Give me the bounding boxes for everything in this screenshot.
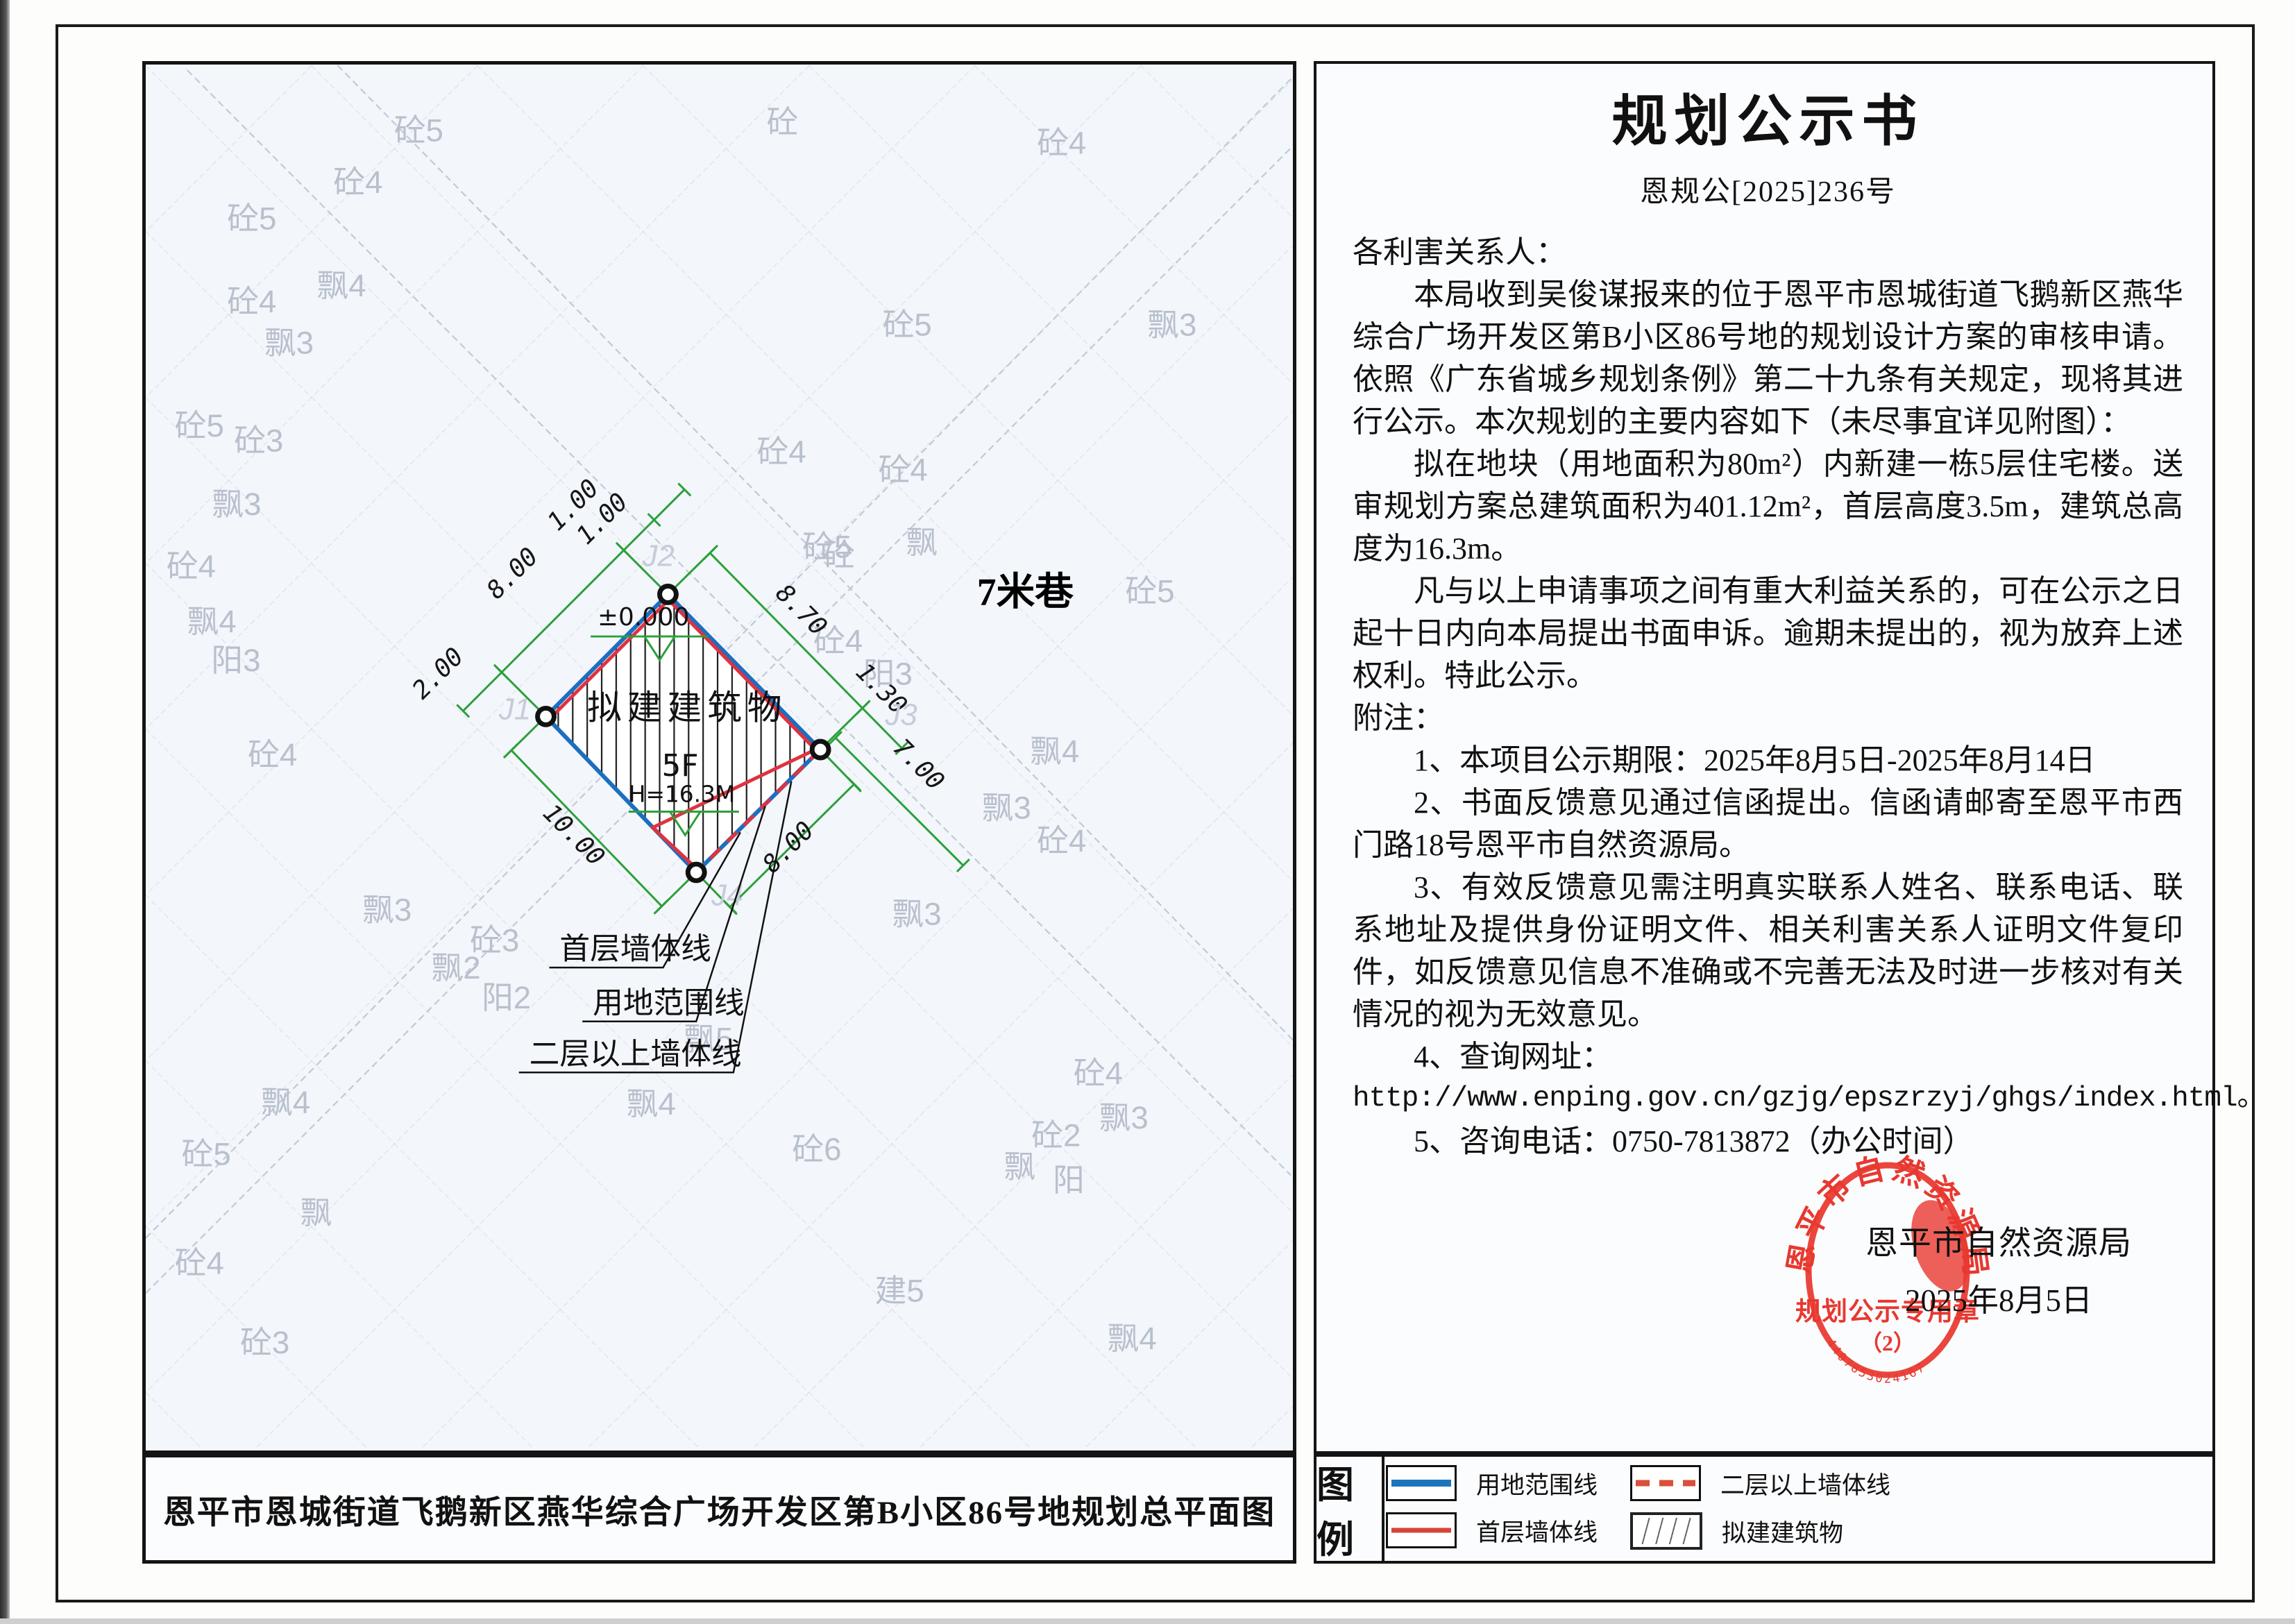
- legend-swatch-line: [1636, 1480, 1695, 1487]
- site-plan-svg: 砼5砼4砼5砼4飘4飘3砼5砼3飘3砼4飘4阳3砼4砼砼4砼5飘3砼4砼4砼飘砼…: [146, 65, 1293, 1450]
- parcel-label: 飘3: [982, 790, 1031, 825]
- parcel-label: 砼: [767, 104, 799, 139]
- notice-paragraph: 4、查询网址：: [1353, 1035, 2183, 1078]
- road-label: 7米巷: [977, 570, 1074, 614]
- callout-label: 用地范围线: [593, 987, 745, 1020]
- scanned-notice-page: 砼5砼4砼5砼4飘4飘3砼5砼3飘3砼4飘4阳3砼4砼砼4砼5飘3砼4砼4砼飘砼…: [0, 0, 2295, 1624]
- parcel-label: 砼5: [802, 530, 852, 565]
- legend-swatch-line: [1391, 1528, 1451, 1533]
- parcel-label: 飘4: [1108, 1321, 1157, 1356]
- parcel-label: 飘2: [432, 950, 481, 986]
- elevation-label: ±0.000: [598, 603, 689, 632]
- parcel-label: 砼3: [234, 423, 283, 459]
- corner-point-label: J1: [498, 692, 531, 726]
- notice-paragraph: 凡与以上申请事项之间有重大利益关系的，可在公示之日起十日内向本局提出书面申诉。逾…: [1353, 570, 2183, 697]
- parcel-label: 飘3: [212, 487, 261, 522]
- parcel-label: 砼5: [1125, 573, 1174, 609]
- parcel-label: 砼5: [182, 1136, 231, 1172]
- parcel-label: 砼4: [227, 284, 276, 319]
- parcel-label: 砼4: [1037, 823, 1086, 858]
- building-label: 拟建建筑物: [587, 688, 787, 727]
- notice-paragraph: 附注：: [1353, 697, 2183, 739]
- parcel-label: 飘3: [1147, 307, 1196, 343]
- plan-caption: 恩平市恩城街道飞鹅新区燕华综合广场开发区第B小区86号地规划总平面图: [163, 1485, 1276, 1533]
- signature-date: 2025年8月5日: [1804, 1275, 2193, 1320]
- legend-swatch-line: [1636, 1518, 1696, 1544]
- parcel-label: 砼4: [248, 737, 297, 772]
- signature-block: 恩平市自然资源局 2025年8月5日: [1804, 1216, 2193, 1320]
- floors-label: 5F: [662, 748, 699, 784]
- scan-edge: [0, 0, 10, 1624]
- parcel-label: 砼3: [240, 1325, 289, 1360]
- notice-body: 各利害关系人： 本局收到吴俊谋报来的位于恩平市恩城街道飞鹅新区燕华综合广场开发区…: [1353, 231, 2183, 1162]
- height-label: H=16.3M: [629, 781, 735, 808]
- site-plan-panel: 砼5砼4砼5砼4飘4飘3砼5砼3飘3砼4飘4阳3砼4砼砼4砼5飘3砼4砼4砼飘砼…: [142, 61, 1296, 1454]
- parcel-label: 砼4: [167, 549, 216, 584]
- legend-title: 图例: [1316, 1457, 1384, 1561]
- parcel-label: 飘3: [264, 325, 314, 361]
- parcel-label: 飘3: [892, 897, 941, 932]
- salutation: 各利害关系人：: [1353, 231, 2183, 273]
- legend-item-label: 首层墙体线: [1476, 1513, 1598, 1548]
- legend-item: 首层墙体线: [1386, 1512, 1598, 1548]
- parcel-label: 飘4: [1030, 734, 1079, 769]
- notice-paragraph: http://www.enping.gov.cn/gzjg/epszrzyj/g…: [1353, 1078, 2183, 1120]
- legend-swatch-red-dashed: [1630, 1465, 1701, 1501]
- parcel-label: 飘4: [187, 604, 237, 639]
- callout-label: 首层墙体线: [559, 933, 711, 966]
- legend-item: 拟建建筑物: [1630, 1512, 1843, 1550]
- parcel-label: 砼6: [792, 1131, 841, 1167]
- notice-paragraph: 3、有效反馈意见需注明真实联系人姓名、联系电话、联系地址及提供身份证明文件、相关…: [1353, 866, 2183, 1035]
- notice-paragraph: 5、咨询电话：0750-7813872（办公时间）: [1353, 1120, 2183, 1162]
- parcel-label: 砼2: [1031, 1118, 1081, 1153]
- parcel-label: 飘: [300, 1195, 332, 1230]
- parcel-label: 砼4: [175, 1245, 224, 1280]
- parcel-label: 砼5: [883, 307, 932, 343]
- legend-swatch-red-solid: [1386, 1512, 1457, 1548]
- legend-swatch-blue-solid: [1386, 1465, 1457, 1501]
- legend-swatch-hatch: [1630, 1512, 1702, 1550]
- corner-point-label: J2: [642, 539, 675, 573]
- parcel-label: 阳: [1053, 1162, 1085, 1198]
- seal-sub-text: （2）: [1860, 1330, 1915, 1355]
- parcel-label: 砼5: [175, 408, 224, 443]
- notice-paragraph: 2、书面反馈意见通过信函提出。信函请邮寄至恩平市西门路18号恩平市自然资源局。: [1353, 781, 2183, 866]
- notice-paragraph: 1、本项目公示期限：2025年8月5日-2025年8月14日: [1353, 739, 2183, 781]
- signature-agency: 恩平市自然资源局: [1804, 1216, 2193, 1264]
- notice-doc-number: 恩规公[2025]236号: [1353, 168, 2183, 210]
- parcel-label: 飘: [1004, 1149, 1036, 1184]
- plan-caption-box: 恩平市恩城街道飞鹅新区燕华综合广场开发区第B小区86号地规划总平面图: [142, 1454, 1296, 1564]
- scan-edge-bottom: [0, 1618, 2295, 1624]
- parcel-label: 飘4: [261, 1085, 310, 1120]
- notice-title: 规划公示书: [1353, 76, 2183, 157]
- legend-item: 二层以上墙体线: [1630, 1465, 1890, 1501]
- corner-point-label: J3: [885, 697, 917, 731]
- parcel-label: 建5: [875, 1273, 924, 1308]
- legend-item-label: 拟建建筑物: [1722, 1514, 1843, 1549]
- parcel-label: 飘: [906, 525, 938, 560]
- legend-swatch-line: [1391, 1480, 1451, 1487]
- parcel-label: 砼4: [757, 434, 806, 470]
- legend-box: 图例 用地范围线首层墙体线二层以上墙体线拟建建筑物: [1314, 1454, 2215, 1564]
- parcel-label: 砼4: [1074, 1056, 1123, 1091]
- parcel-label: 飘4: [627, 1086, 676, 1122]
- parcel-label: 砼5: [227, 201, 276, 237]
- parcel-label: 砼4: [879, 452, 928, 487]
- parcel-label: 阳3: [211, 643, 260, 678]
- parcel-label: 飘4: [317, 268, 366, 303]
- legend-item-label: 用地范围线: [1476, 1466, 1598, 1501]
- parcel-label: 阳2: [482, 980, 531, 1015]
- parcel-label: 飘3: [1099, 1100, 1149, 1135]
- notice-paragraph: 本局收到吴俊谋报来的位于恩平市恩城街道飞鹅新区燕华综合广场开发区第B小区86号地…: [1353, 273, 2183, 443]
- parcel-label: 飘3: [362, 893, 412, 928]
- parcel-label: 砼4: [1037, 125, 1086, 160]
- notice-paragraph: 拟在地块（用地面积为80m²）内新建一栋5层住宅楼。送审规划方案总建筑面积为40…: [1353, 443, 2183, 570]
- parcel-label: 砼5: [394, 112, 443, 148]
- parcel-label: 砼4: [333, 164, 382, 200]
- corner-point-label: J4: [711, 879, 743, 913]
- callout-label: 二层以上墙体线: [530, 1038, 742, 1071]
- legend-item: 用地范围线: [1386, 1465, 1598, 1501]
- legend-item-label: 二层以上墙体线: [1720, 1466, 1890, 1501]
